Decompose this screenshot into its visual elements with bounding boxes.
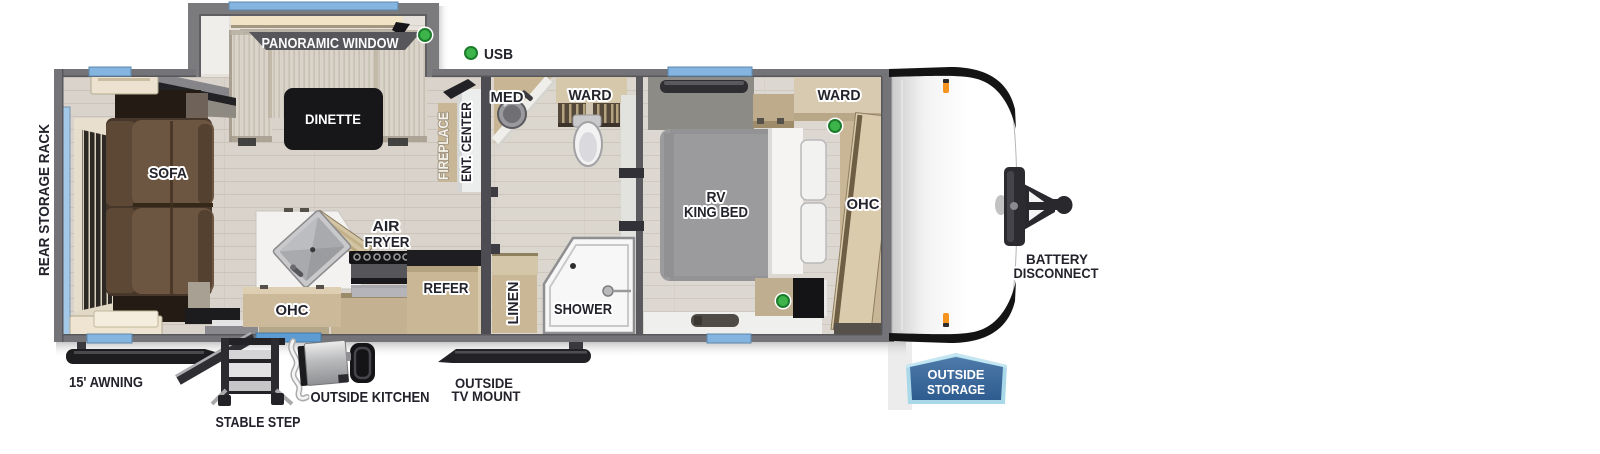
- svg-text:OHC: OHC: [847, 196, 880, 213]
- svg-text:STABLE STEP: STABLE STEP: [216, 414, 301, 431]
- svg-text:DINETTE: DINETTE: [305, 111, 361, 127]
- svg-text:MED: MED: [491, 89, 524, 106]
- svg-text:OHC: OHC: [276, 302, 309, 319]
- svg-text:WARD: WARD: [818, 87, 861, 104]
- svg-text:TV MOUNT: TV MOUNT: [452, 388, 521, 404]
- svg-text:FRYER: FRYER: [365, 234, 410, 251]
- svg-text:OUTSIDE KITCHEN: OUTSIDE KITCHEN: [311, 389, 430, 406]
- svg-text:AIR: AIR: [373, 218, 400, 235]
- svg-text:SHOWER: SHOWER: [554, 301, 612, 318]
- svg-text:PANORAMIC WINDOW: PANORAMIC WINDOW: [262, 35, 400, 52]
- svg-text:WARD: WARD: [569, 87, 612, 104]
- svg-text:SOFA: SOFA: [149, 165, 187, 182]
- svg-text:REAR STORAGE RACK: REAR STORAGE RACK: [36, 124, 53, 276]
- svg-text:REFER: REFER: [424, 280, 469, 297]
- svg-text:STORAGE: STORAGE: [927, 382, 985, 397]
- svg-text:15' AWNING: 15' AWNING: [69, 374, 143, 391]
- svg-text:OUTSIDE: OUTSIDE: [928, 367, 985, 382]
- svg-text:ENT. CENTER: ENT. CENTER: [459, 102, 474, 182]
- svg-text:KING BED: KING BED: [684, 204, 748, 221]
- svg-text:FIREPLACE: FIREPLACE: [436, 112, 451, 180]
- svg-text:USB: USB: [484, 46, 513, 63]
- svg-text:LINEN: LINEN: [505, 282, 522, 325]
- svg-text:DISCONNECT: DISCONNECT: [1014, 265, 1099, 281]
